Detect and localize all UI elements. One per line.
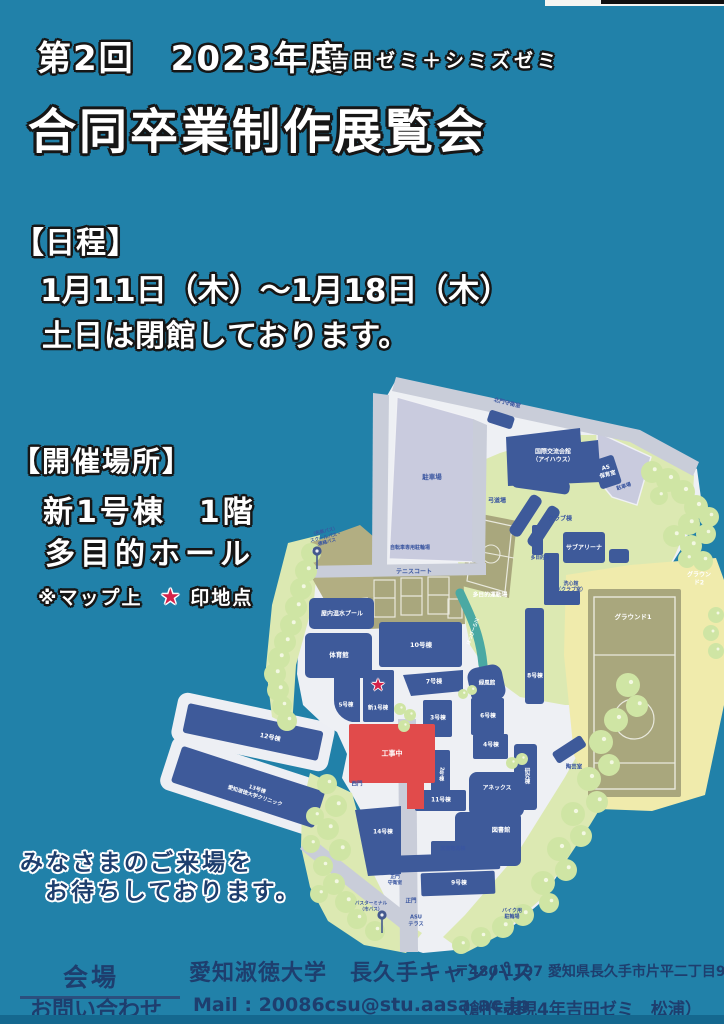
map-label: 国際交流会館 （アイハウス）: [532, 449, 574, 464]
map-note-prefix: ※マップ上: [38, 587, 142, 609]
map-label: 図書館南棟: [440, 846, 465, 852]
map-label: 正門: [405, 899, 416, 906]
map-label: 工事中: [382, 750, 403, 759]
bottom-band: [0, 1015, 724, 1024]
footer-address: 〒480-1197 愛知県長久手市片平二丁目9: [455, 961, 724, 981]
map-label: 屋内温水プール: [321, 610, 363, 618]
map-label: 2号棟: [438, 767, 445, 781]
map-label: グラウンド2: [687, 572, 712, 587]
map-label: 9号棟: [451, 880, 467, 887]
map-label: ASU テラス: [408, 915, 423, 928]
map-label: 6号棟: [480, 713, 496, 720]
header-edition-year: 第2回 2023年度: [37, 31, 345, 80]
map-label: 自転車専用駐輪場: [390, 545, 430, 551]
map-label: 3号棟: [430, 715, 446, 722]
map-label: 緑風館: [479, 681, 496, 688]
map-label: 8号棟: [527, 673, 543, 680]
map-label: 新1号棟: [368, 706, 388, 713]
map-label: 7号棟: [426, 678, 442, 686]
poster-title: 合同卒業制作展覧会: [28, 92, 487, 162]
map-label: バスターミナル （市バス）: [355, 901, 387, 912]
map-label: 11号棟: [431, 797, 451, 804]
map-label: バイク用 駐輪場: [502, 908, 522, 921]
map-label: グラウンド1: [614, 613, 651, 621]
footer-venue-label: 会場: [63, 958, 119, 994]
schedule-heading: 【日程】: [14, 218, 138, 262]
map-label: 12号棟: [259, 732, 281, 744]
closing-line2: お待ちしております。: [45, 872, 301, 906]
map-label: 駐車場: [422, 473, 442, 481]
map-label: 13号棟 愛知淑徳大学クリニック: [227, 778, 285, 808]
map-label: 洗心館 （クラブ室）: [556, 581, 586, 594]
map-label: 14号棟: [373, 829, 393, 836]
map-label: 研究棟: [523, 768, 530, 785]
map-label: 体育館: [329, 651, 349, 659]
header-seminars: 吉田ゼミ＋シミズゼミ: [330, 46, 560, 73]
schedule-note: 土日は閉館しております。: [42, 311, 409, 355]
map-label: クラブ棟: [548, 515, 572, 523]
scan-artifact-dark: [601, 0, 724, 4]
map-label: 多目的棟: [531, 556, 549, 562]
map-label: 4号棟: [483, 742, 499, 749]
map-label: 駐車場: [616, 482, 632, 493]
poster-page: 第2回 2023年度 吉田ゼミ＋シミズゼミ 合同卒業制作展覧会 【日程】 1月1…: [0, 0, 724, 1024]
map-label: 陶芸室: [566, 765, 583, 772]
map-label: テニスコート: [396, 568, 432, 576]
map-label: ほっぴーら川: [467, 618, 482, 646]
map-label: 図書館: [492, 827, 511, 835]
schedule-dates: 1月11日（木）～1月18日（木）: [40, 265, 510, 310]
map-label: サブアリーナ: [566, 544, 602, 552]
map-label: 弓道場: [488, 497, 506, 505]
map-label: 多目的運動場: [473, 592, 508, 599]
map-label: AS 保育室: [597, 463, 617, 481]
map-label: 5号棟: [339, 703, 354, 710]
map-label: 北門守衛室: [493, 397, 521, 410]
map-star-icon: ★: [370, 675, 385, 696]
map-label: アネックス: [483, 785, 512, 792]
map-label: （名鉄バス） スクールバス・ 連絡バス: [308, 526, 343, 550]
map-label: 10号棟: [410, 641, 432, 649]
map-label: 正門 守衛室: [388, 875, 402, 887]
map-label: 西門: [351, 782, 362, 789]
